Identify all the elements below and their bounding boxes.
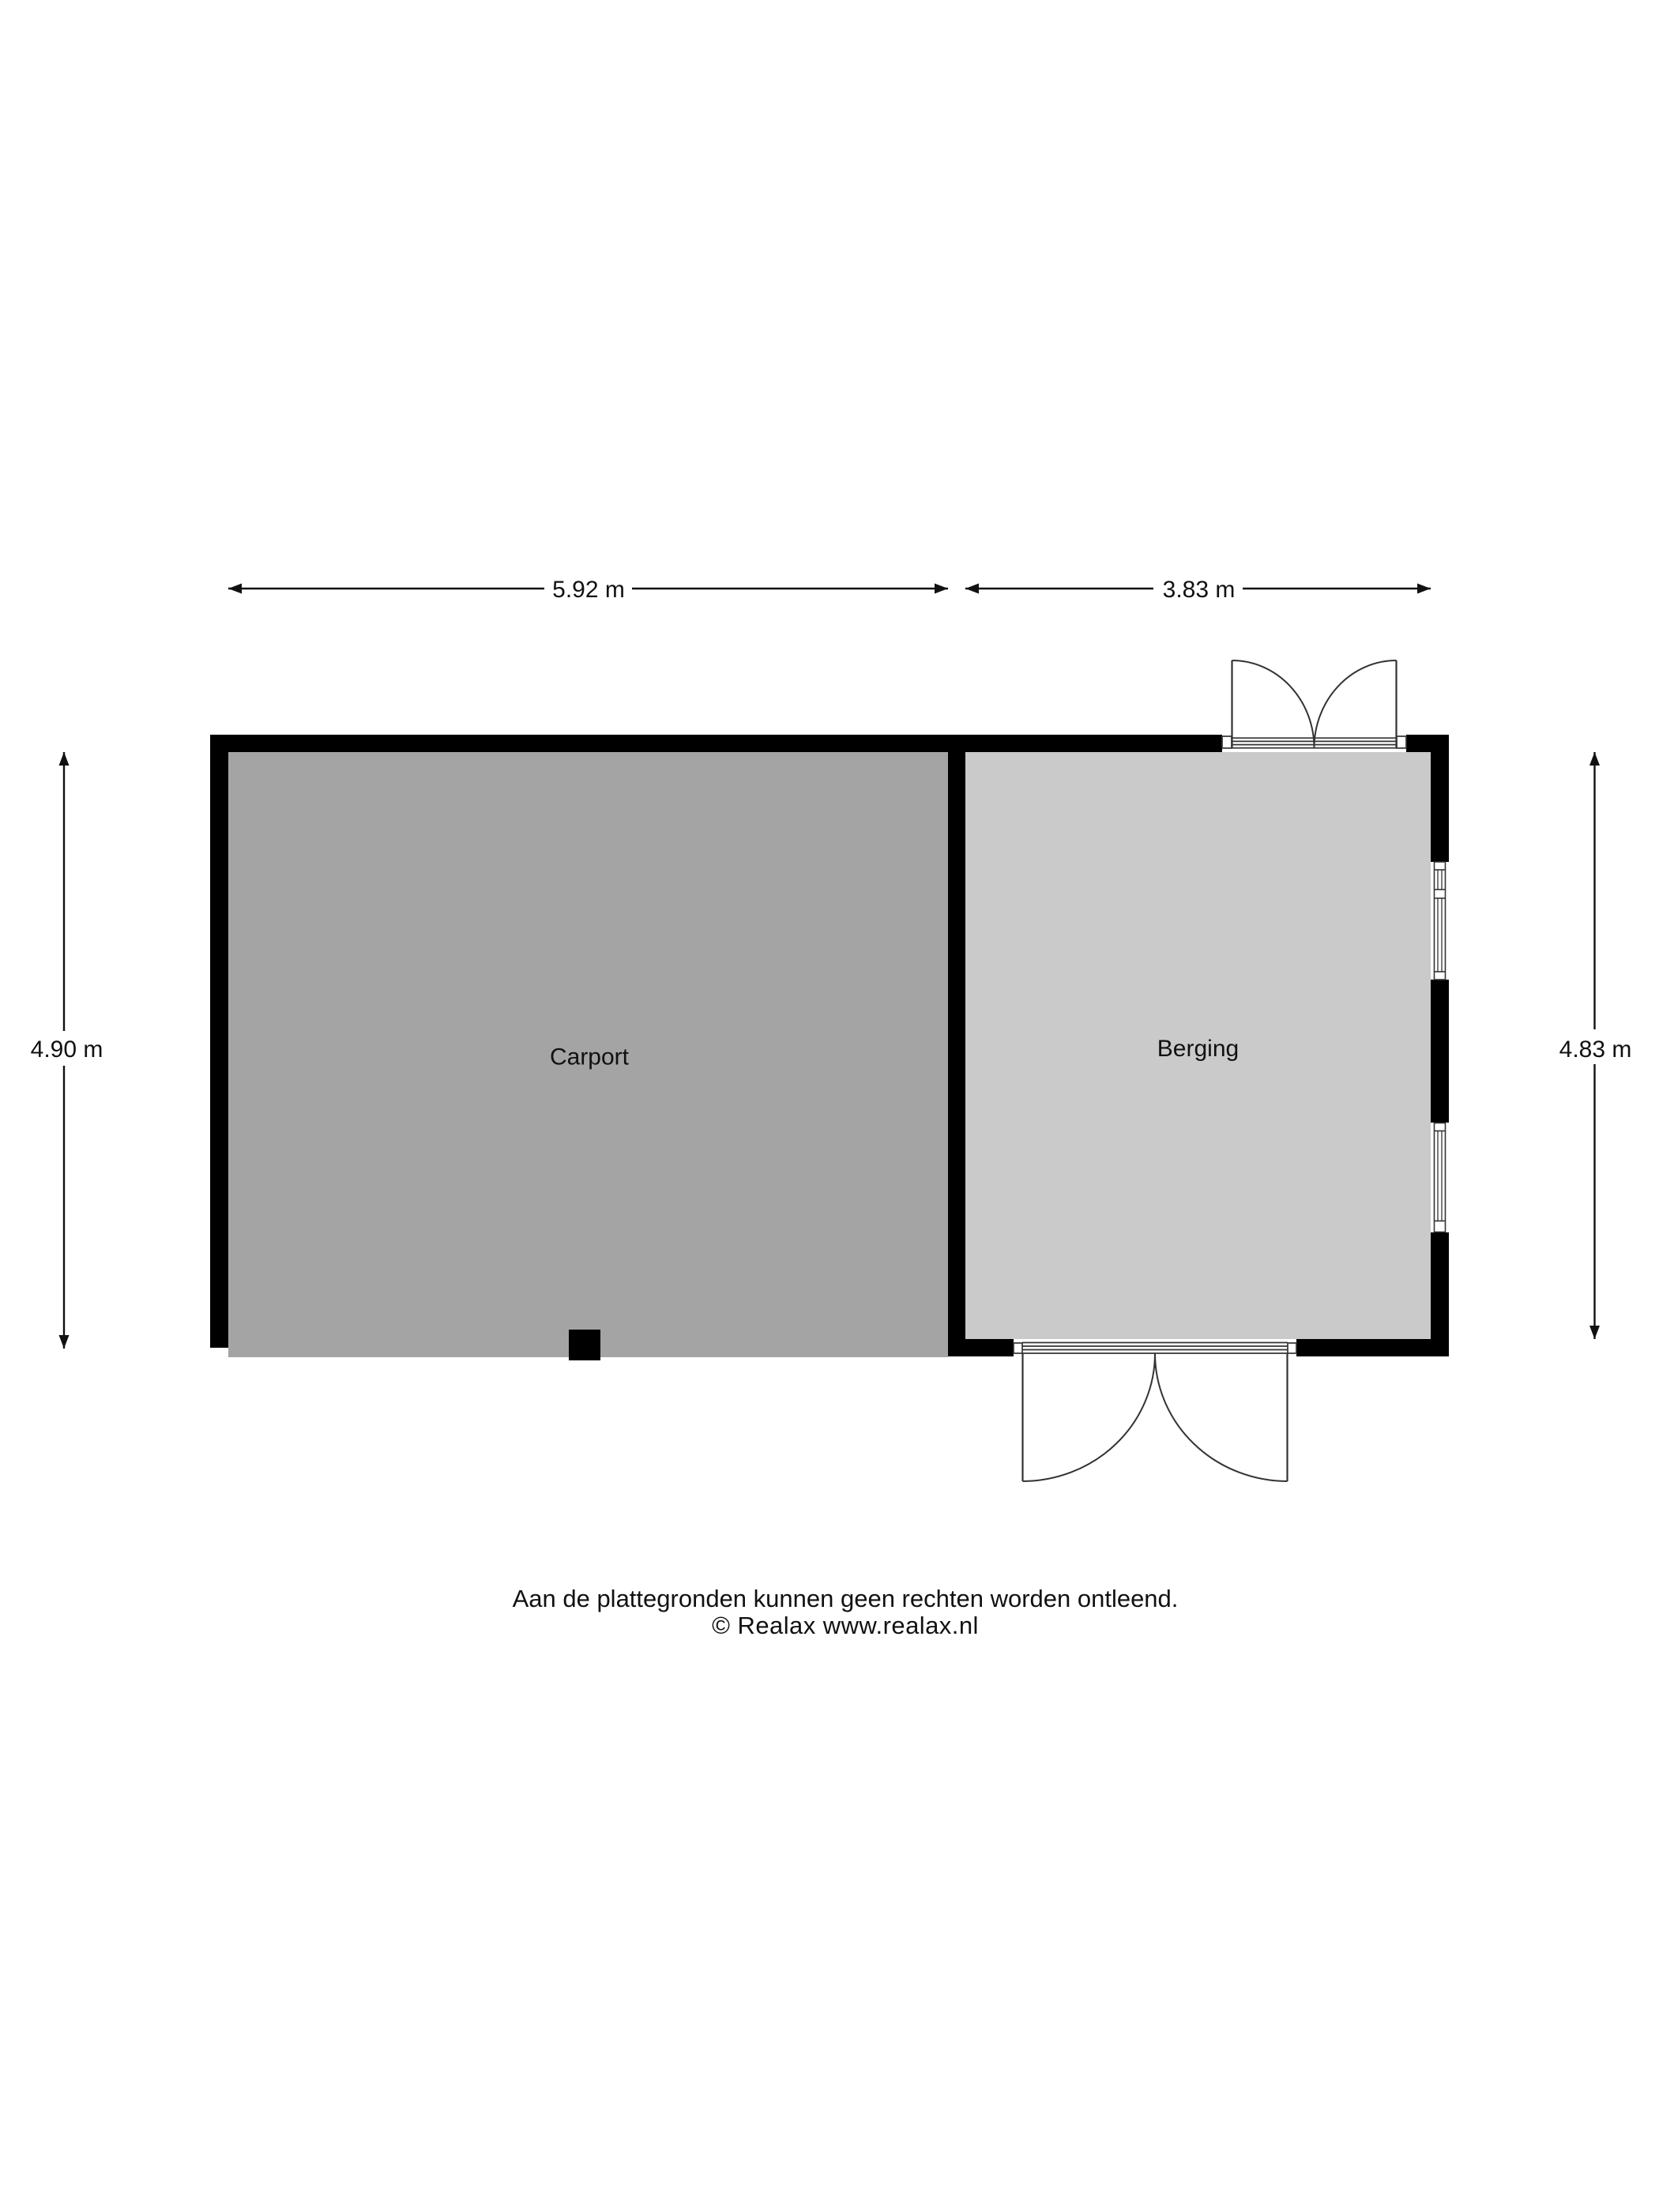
svg-text:Carport: Carport [550,1044,630,1070]
svg-text:5.92 m: 5.92 m [552,577,625,603]
svg-text:4.90 m: 4.90 m [31,1036,103,1063]
svg-text:Aan de plattegronden kunnen ge: Aan de plattegronden kunnen geen rechten… [513,1585,1179,1612]
svg-text:© Realax www.realax.nl: © Realax www.realax.nl [712,1612,979,1639]
svg-text:4.83 m: 4.83 m [1559,1036,1632,1063]
svg-text:Berging: Berging [1157,1036,1239,1062]
svg-text:3.83 m: 3.83 m [1163,577,1236,603]
